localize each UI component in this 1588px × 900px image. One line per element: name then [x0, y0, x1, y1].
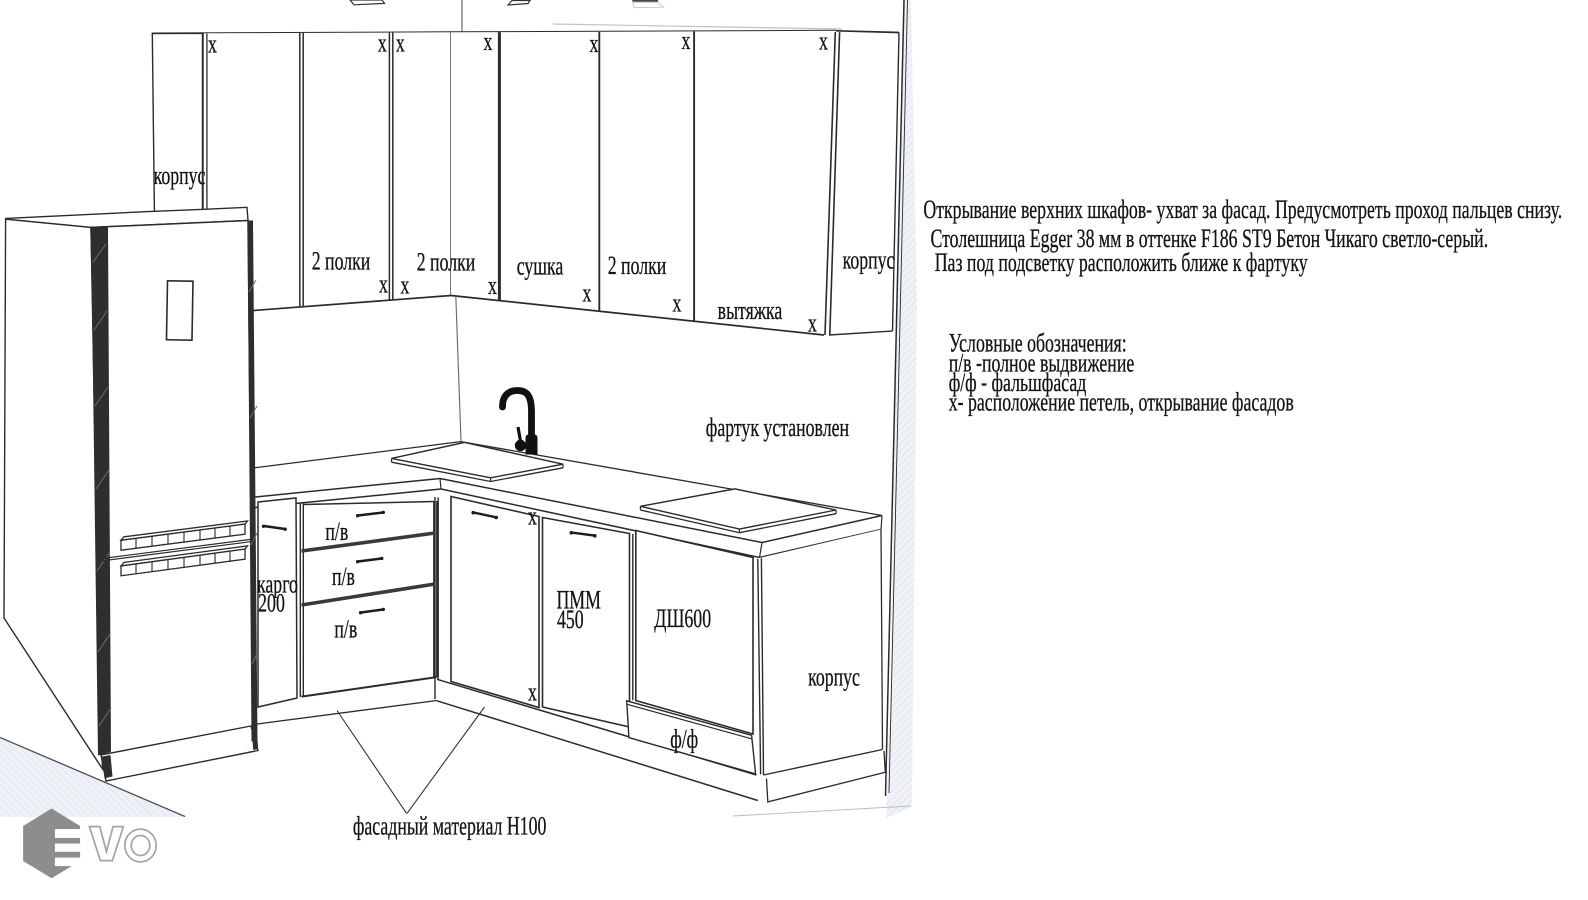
svg-text:п/в: п/в — [332, 562, 355, 591]
svg-text:ф/ф: ф/ф — [670, 724, 698, 753]
svg-text:х: х — [484, 27, 493, 56]
svg-text:Паз под подсветку расположить: Паз под подсветку расположить ближе к фа… — [935, 248, 1309, 277]
svg-text:х: х — [401, 270, 410, 299]
svg-text:ДШ600: ДШ600 — [654, 604, 711, 633]
svg-text:х: х — [528, 677, 537, 706]
svg-text:х: х — [379, 269, 388, 298]
svg-text:х: х — [590, 29, 599, 58]
svg-text:450: 450 — [557, 605, 584, 634]
svg-text:х: х — [488, 271, 497, 300]
svg-text:п/в: п/в — [325, 517, 348, 546]
svg-text:вытяжка: вытяжка — [718, 296, 783, 325]
svg-text:х: х — [583, 278, 592, 307]
svg-text:х- расположение петель, открыв: х- расположение петель, открывание фасад… — [949, 387, 1294, 416]
svg-text:сушка: сушка — [517, 251, 564, 280]
svg-text:корпус: корпус — [154, 161, 206, 190]
svg-text:х: х — [819, 26, 828, 55]
svg-text:2 полки: 2 полки — [312, 246, 371, 275]
svg-text:фасадный материал Н100: фасадный материал Н100 — [353, 811, 547, 840]
svg-text:корпус: корпус — [808, 662, 860, 691]
svg-text:2 полки: 2 полки — [608, 251, 667, 280]
svg-text:Открывание верхних шкафов- ухв: Открывание верхних шкафов- ухват за фаса… — [923, 194, 1562, 223]
svg-text:х: х — [808, 308, 817, 337]
svg-text:х: х — [378, 28, 387, 57]
svg-text:п/в: п/в — [334, 614, 357, 643]
svg-text:х: х — [528, 501, 537, 530]
svg-text:х: х — [396, 28, 405, 57]
svg-text:х: х — [673, 288, 682, 317]
svg-text:корпус: корпус — [843, 245, 895, 274]
svg-text:х: х — [208, 29, 217, 58]
svg-text:2 полки: 2 полки — [417, 247, 476, 276]
svg-text:х: х — [682, 26, 691, 55]
svg-text:фартук установлен: фартук установлен — [706, 413, 849, 442]
svg-text:200: 200 — [258, 588, 285, 617]
